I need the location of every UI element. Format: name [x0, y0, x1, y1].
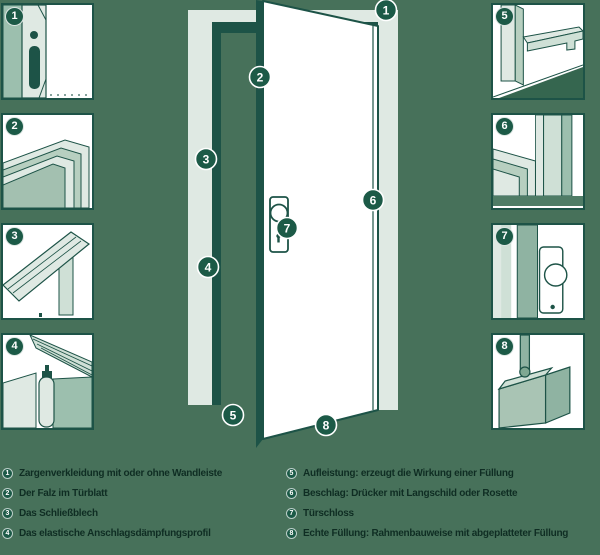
callout-badge-6: 6 [363, 190, 384, 211]
legend-badge-4: 4 [2, 528, 13, 539]
legend-label-7: Türschloss [303, 508, 354, 519]
thumbnail-falz-im-tuerblatt: 2 [1, 113, 94, 210]
thumbnail-badge-3: 3 [5, 227, 24, 246]
legend-label-8: Echte Füllung: Rahmenbauweise mit abgepl… [303, 528, 568, 539]
svg-text:2: 2 [257, 70, 264, 84]
legend-badge-2: 2 [2, 488, 13, 499]
door-diagram: 1 2 3 4 5 6 7 8 [180, 0, 405, 455]
keyhole [550, 305, 554, 309]
thumbnail-badge-4: 4 [5, 337, 24, 356]
legend-label-5: Aufleistung: erzeugt die Wirkung einer F… [303, 468, 514, 479]
thumbnail-schliessblech: 3 [1, 223, 94, 320]
thumbnail-badge-1: 1 [5, 7, 24, 26]
svg-text:3: 3 [203, 152, 210, 166]
legend-label-2: Der Falz im Türblatt [19, 488, 107, 499]
legend-badge-6: 6 [286, 488, 297, 499]
legend-item-6: 6 Beschlag: Drücker mit Langschild oder … [286, 487, 517, 500]
legend-item-5: 5 Aufleistung: erzeugt die Wirkung einer… [286, 467, 514, 480]
legend-badge-8: 8 [286, 528, 297, 539]
svg-text:4: 4 [205, 260, 212, 274]
svg-text:8: 8 [323, 418, 330, 432]
latch-hole [30, 31, 38, 39]
callout-badge-7: 7 [277, 218, 298, 239]
thumbnail-badge-5: 5 [495, 7, 514, 26]
legend-item-3: 3 Das Schließblech [2, 507, 98, 520]
thumbnail-echte-fuellung: 8 [491, 333, 585, 430]
thumbnail-badge-8: 8 [495, 337, 514, 356]
legend-badge-3: 3 [2, 508, 13, 519]
callout-badge-3: 3 [196, 149, 217, 170]
thumbnail-badge-6: 6 [495, 117, 514, 136]
legend-label-3: Das Schließblech [19, 508, 98, 519]
legend-item-4: 4 Das elastische Anschlagsdämpfungsprofi… [2, 527, 211, 540]
legend-badge-1: 1 [2, 468, 13, 479]
thumbnail-zargenverkleidung: 1 [1, 3, 94, 100]
legend-item-7: 7 Türschloss [286, 507, 354, 520]
svg-text:6: 6 [370, 193, 377, 207]
legend-label-6: Beschlag: Drücker mit Langschild oder Ro… [303, 488, 517, 499]
thumbnail-beschlag: 6 [491, 113, 585, 210]
callout-badge-2: 2 [250, 67, 271, 88]
svg-text:1: 1 [383, 3, 390, 17]
strike-slot [29, 46, 40, 89]
thumbnail-tuerschloss: 7 [491, 223, 585, 320]
svg-text:5: 5 [230, 408, 237, 422]
rosette [545, 264, 567, 286]
dotted-guideline [50, 94, 87, 96]
callout-badge-5: 5 [223, 405, 244, 426]
thumbnail-badge-2: 2 [5, 117, 24, 136]
legend-item-2: 2 Der Falz im Türblatt [2, 487, 107, 500]
thumbnail-anschlagsdaempfungsprofil: 4 [1, 333, 94, 430]
legend-label-4: Das elastische Anschlagsdämpfungsprofil [19, 528, 211, 539]
thumbnail-aufleistung: 5 [491, 3, 585, 100]
legend-item-8: 8 Echte Füllung: Rahmenbauweise mit abge… [286, 527, 568, 540]
thumbnail-badge-7: 7 [495, 227, 514, 246]
legend-badge-7: 7 [286, 508, 297, 519]
callout-badge-1: 1 [376, 0, 397, 21]
svg-text:7: 7 [284, 221, 291, 235]
legend-item-1: 1 Zargenverkleidung mit oder ohne Wandle… [2, 467, 222, 480]
callout-badge-4: 4 [198, 257, 219, 278]
callout-badge-8: 8 [316, 415, 337, 436]
legend-badge-5: 5 [286, 468, 297, 479]
legend-label-1: Zargenverkleidung mit oder ohne Wandleis… [19, 468, 222, 479]
seal-bumper [39, 377, 54, 427]
